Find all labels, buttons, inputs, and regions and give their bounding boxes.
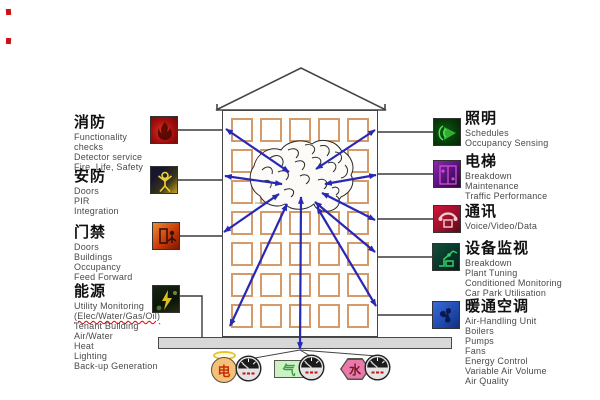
label-line: Tenant Building (74, 321, 194, 331)
gas-meter-gauge (298, 354, 325, 381)
label-line: PIR (74, 196, 194, 206)
label-line: Occupancy (74, 262, 194, 272)
building-window (231, 180, 253, 204)
elevator-icon (433, 160, 461, 188)
label-line: Fans (465, 346, 599, 356)
building-window (231, 118, 253, 142)
label-line: Car Park Utilisation (465, 288, 599, 298)
hvac-group: 暖通空调 Air-Handling UnitBoilersPumpsFansEn… (465, 299, 599, 386)
label-line: Buildings (74, 252, 194, 262)
building-window (289, 149, 311, 173)
building-window (318, 273, 340, 297)
building-window (289, 180, 311, 204)
building-window (289, 304, 311, 328)
building-window (231, 211, 253, 235)
label-line: Detector service (74, 152, 194, 162)
access-door-icon (152, 222, 180, 250)
communications-group: 通讯 Voice/Video/Data (465, 204, 599, 231)
gas-label: 气 (282, 360, 295, 379)
label-line: Schedules (465, 128, 599, 138)
building-window (347, 149, 369, 173)
building-window (289, 242, 311, 266)
elevator-group: 电梯 BreakdownMaintenanceTraffic Performan… (465, 154, 599, 201)
lighting-title: 照明 (465, 111, 599, 127)
label-line: Traffic Performance (465, 191, 599, 201)
red-artifact-mark (6, 9, 11, 15)
building-window (289, 211, 311, 235)
building-window (347, 118, 369, 142)
label-line: Conditioned Monitoring (465, 278, 599, 288)
building-window (231, 273, 253, 297)
building-roof (216, 68, 386, 110)
building-window (289, 273, 311, 297)
label-line: Pumps (465, 336, 599, 346)
label-line: Air-Handling Unit (465, 316, 599, 326)
water-meter-gauge (364, 354, 391, 381)
bms-diagram: 消防 FunctionalitychecksDetector serviceFi… (0, 0, 600, 400)
building-window (260, 180, 282, 204)
building-window (260, 149, 282, 173)
label-line: Variable Air Volume (465, 366, 599, 376)
label-line: Energy Control (465, 356, 599, 366)
building-window (289, 118, 311, 142)
building-window (260, 118, 282, 142)
building-window (318, 304, 340, 328)
building-window (231, 304, 253, 328)
lighting-lines: SchedulesOccupancy Sensing (465, 128, 599, 148)
security-person-icon (150, 166, 178, 194)
label-line: Boilers (465, 326, 599, 336)
electricity-meter-gauge (235, 355, 262, 382)
label-line: Back-up Generation (74, 361, 194, 371)
building-windows (228, 115, 372, 331)
equipment-monitoring-group: 设备监视 BreakdownPlant TuningConditioned Mo… (465, 241, 599, 298)
label-line: Air/Water (74, 331, 194, 341)
hvac-fan-icon (432, 301, 460, 329)
lighting-group: 照明 SchedulesOccupancy Sensing (465, 111, 599, 148)
building-window (347, 211, 369, 235)
label-line: Maintenance (465, 181, 599, 191)
hvac-lines: Air-Handling UnitBoilersPumpsFansEnergy … (465, 316, 599, 386)
lighting-sensor-icon (433, 118, 461, 146)
elevator-lines: BreakdownMaintenanceTraffic Performance (465, 171, 599, 201)
building-window (347, 273, 369, 297)
building-window (318, 211, 340, 235)
building-window (318, 180, 340, 204)
label-line: Occupancy Sensing (465, 138, 599, 148)
label-line: Breakdown (465, 171, 599, 181)
label-line: Plant Tuning (465, 268, 599, 278)
building (222, 110, 378, 337)
telephone-icon (433, 205, 461, 233)
label-line: Integration (74, 206, 194, 216)
hvac-title: 暖通空调 (465, 299, 599, 315)
building-window (347, 304, 369, 328)
label-line: Feed Forward (74, 272, 194, 282)
building-window (347, 180, 369, 204)
label-line: Lighting (74, 351, 194, 361)
building-window (260, 242, 282, 266)
communications-title: 通讯 (465, 204, 599, 220)
label-line: Voice/Video/Data (465, 221, 599, 231)
building-window (231, 149, 253, 173)
building-base-bar (158, 337, 452, 349)
equipment-monitor-icon (432, 243, 460, 271)
label-line: Breakdown (465, 258, 599, 268)
building-window (260, 211, 282, 235)
label-line: Heat (74, 341, 194, 351)
electricity-badge: 电 (211, 357, 237, 383)
communications-lines: Voice/Video/Data (465, 221, 599, 231)
building-window (260, 273, 282, 297)
equipment-monitoring-lines: BreakdownPlant TuningConditioned Monitor… (465, 258, 599, 298)
building-window (318, 118, 340, 142)
building-window (260, 304, 282, 328)
building-window (347, 242, 369, 266)
equipment-monitoring-title: 设备监视 (465, 241, 599, 257)
red-artifact-mark (6, 38, 11, 44)
energy-icon (152, 285, 180, 313)
label-line: Air Quality (465, 376, 599, 386)
electricity-label: 电 (217, 361, 230, 380)
building-window (318, 149, 340, 173)
fire-icon (150, 116, 178, 144)
building-window (231, 242, 253, 266)
building-window (318, 242, 340, 266)
elevator-title: 电梯 (465, 154, 599, 170)
